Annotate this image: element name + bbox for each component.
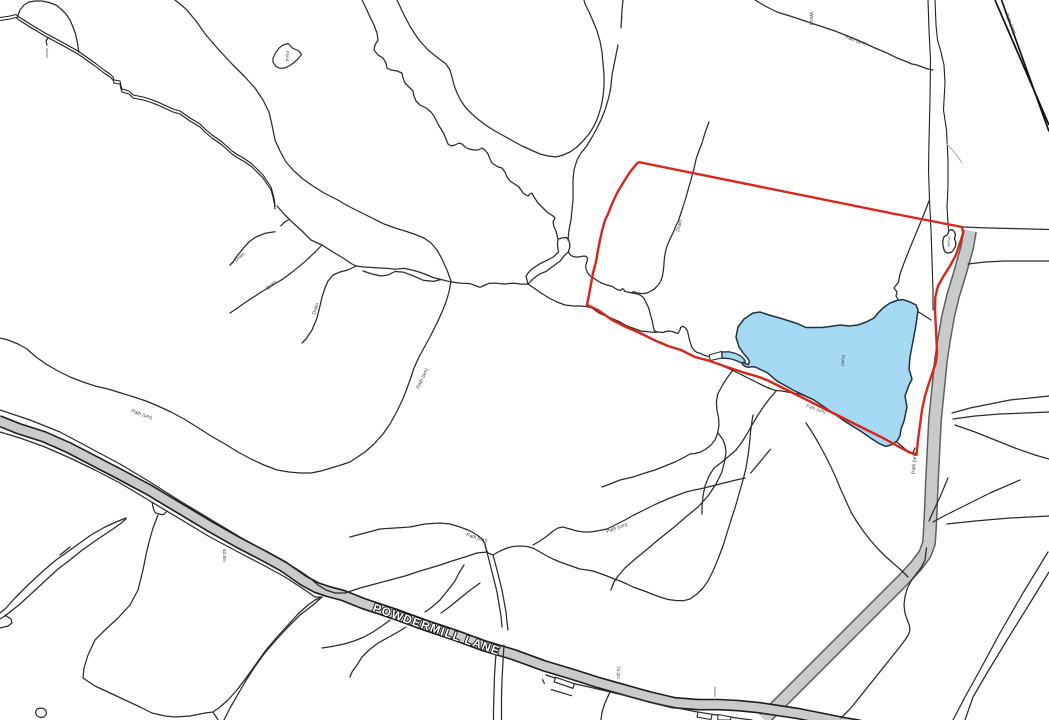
svg-text:Wood: Wood [808,12,814,25]
svg-text:Issues: Issues [45,48,49,58]
svg-text:74.3m: 74.3m [616,666,621,679]
svg-text:Pond: Pond [947,237,952,246]
svg-text:Pond: Pond [841,355,846,366]
svg-text:Issues: Issues [713,687,717,697]
svg-text:Pond: Pond [285,51,290,62]
svg-text:Path (um): Path (um) [911,452,918,475]
svg-text:63.8m: 63.8m [222,549,227,562]
